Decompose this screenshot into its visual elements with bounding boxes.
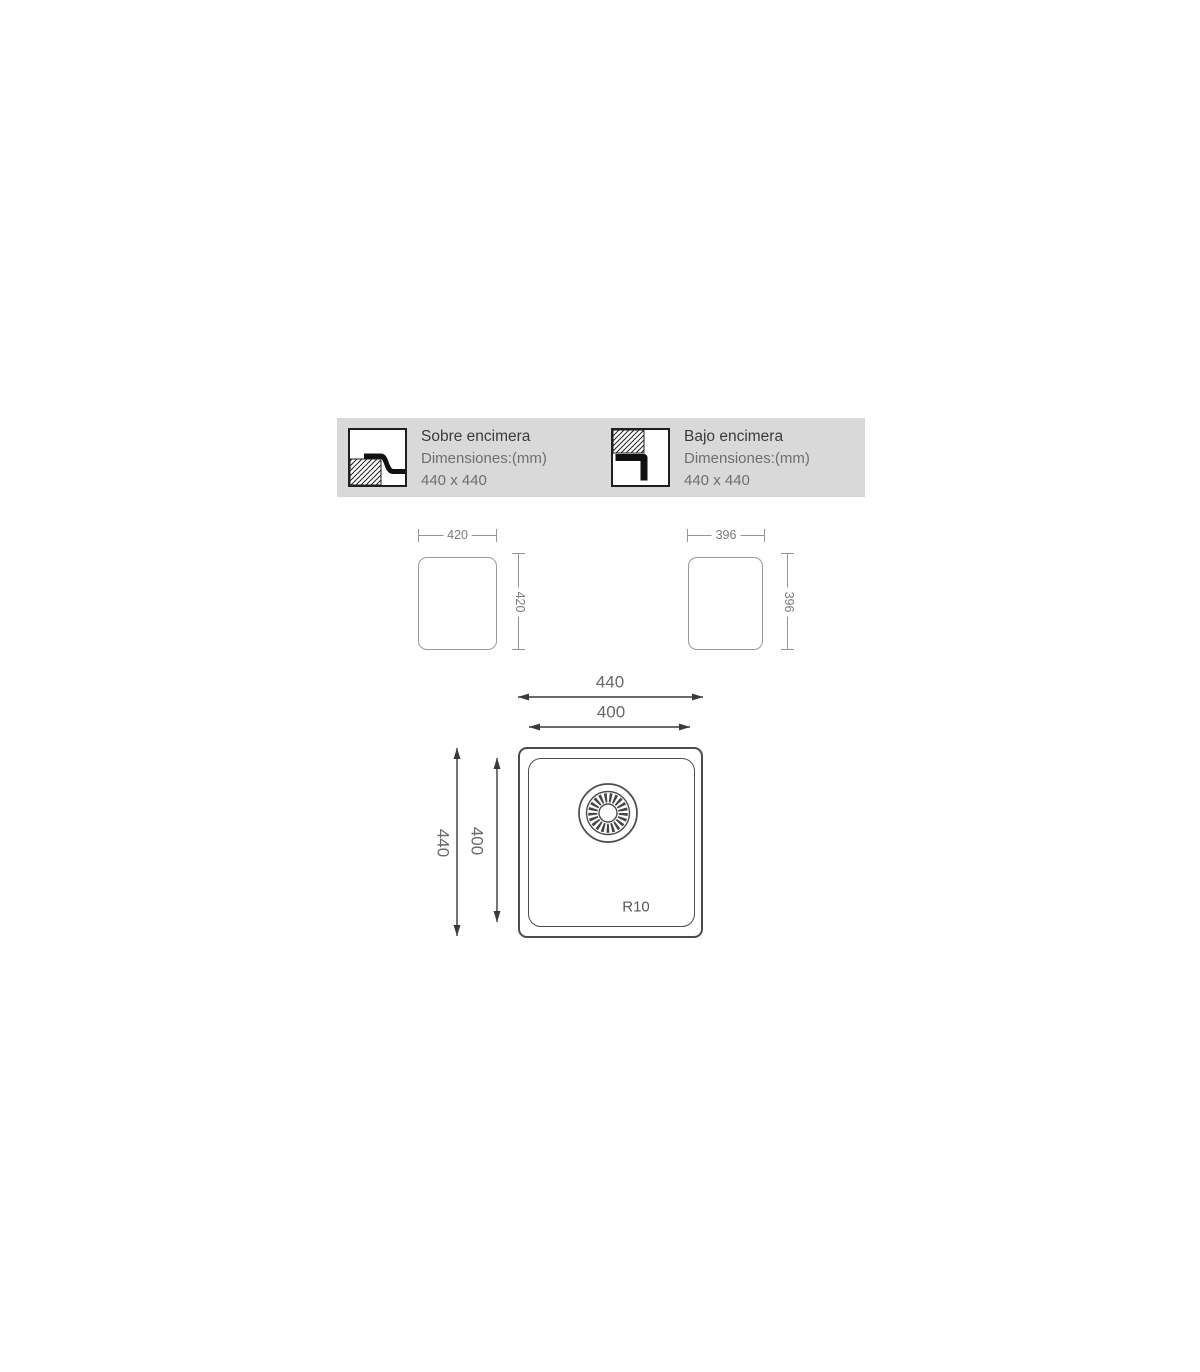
cutout-topmount-width-dimension: 420 bbox=[418, 529, 497, 542]
sink-dimensions-diagram: Sobre encimera Dimensiones:(mm) 440 x 44… bbox=[0, 0, 1200, 1372]
dimensions-label: Dimensiones:(mm) bbox=[421, 448, 547, 470]
dimensions-value: 440 x 440 bbox=[684, 470, 810, 492]
mounting-option-topmount: Sobre encimera Dimensiones:(mm) 440 x 44… bbox=[421, 426, 547, 492]
cutout-undermount-width-label: 396 bbox=[712, 529, 741, 543]
cutout-topmount-height-label: 420 bbox=[512, 587, 526, 616]
undermount-profile-icon bbox=[611, 428, 670, 487]
cutout-undermount-outline bbox=[688, 557, 763, 650]
mounting-option-title: Bajo encimera bbox=[684, 426, 810, 448]
cutout-topmount-outline bbox=[418, 557, 497, 650]
topmount-profile-icon bbox=[348, 428, 407, 487]
cutout-undermount-height-dimension: 396 bbox=[781, 553, 794, 650]
cutout-topmount-width-label: 420 bbox=[443, 529, 472, 543]
cutout-undermount-width-dimension: 396 bbox=[687, 529, 765, 542]
dimensions-label: Dimensiones:(mm) bbox=[684, 448, 810, 470]
mounting-option-undermount: Bajo encimera Dimensiones:(mm) 440 x 440 bbox=[684, 426, 810, 492]
corner-radius-label: R10 bbox=[622, 900, 650, 915]
mounting-options-bar: Sobre encimera Dimensiones:(mm) 440 x 44… bbox=[337, 418, 865, 497]
mounting-option-title: Sobre encimera bbox=[421, 426, 547, 448]
dimensions-value: 440 x 440 bbox=[421, 470, 547, 492]
cutout-topmount-height-dimension: 420 bbox=[512, 553, 525, 650]
drain-icon bbox=[577, 782, 639, 844]
cutout-undermount-height-label: 396 bbox=[781, 587, 795, 616]
